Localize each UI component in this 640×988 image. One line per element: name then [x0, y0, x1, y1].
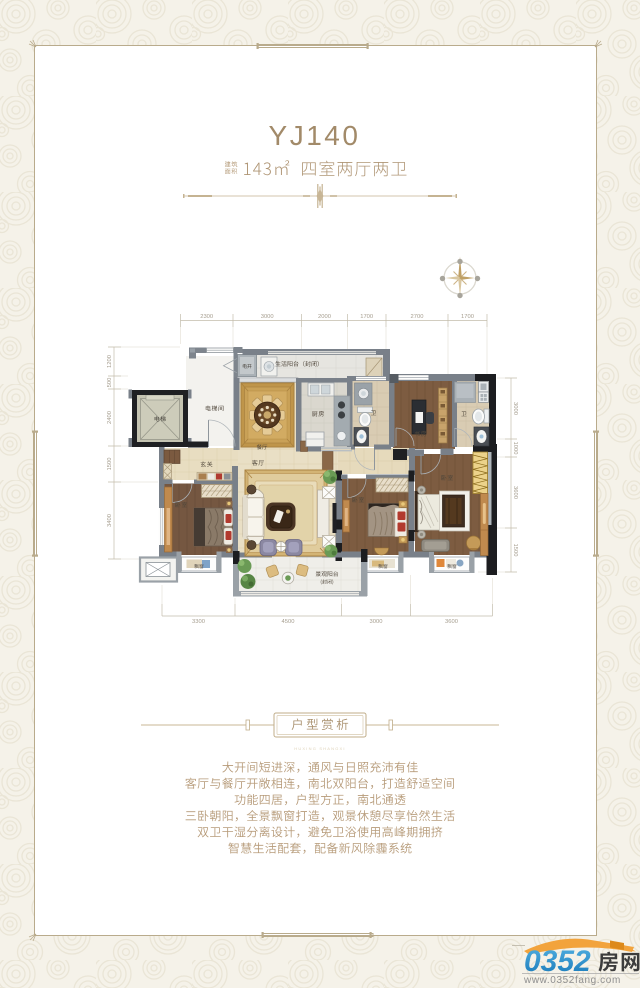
- svg-text:0352: 0352: [524, 945, 591, 978]
- svg-text:www.0352fang.com: www.0352fang.com: [523, 975, 621, 986]
